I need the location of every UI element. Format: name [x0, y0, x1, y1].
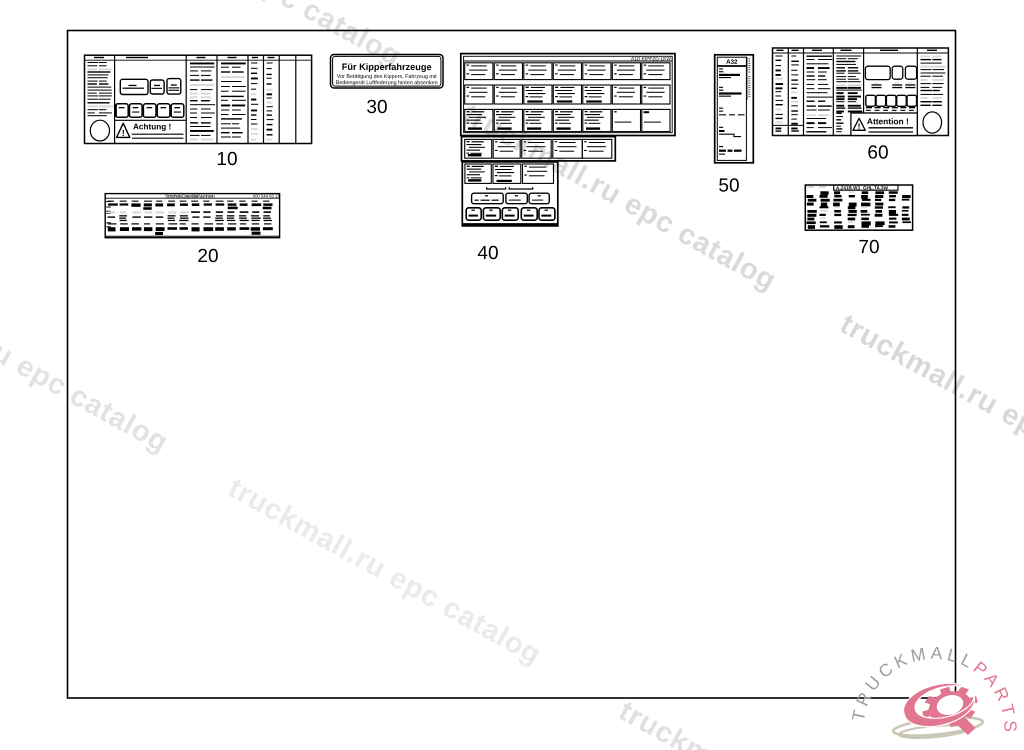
svg-text:A.Z41B.W3: A.Z41B.W3	[836, 185, 860, 190]
svg-text:60: 60	[867, 142, 888, 163]
svg-text:Sicherheits-Datenblatt-Nummern: Sicherheits-Datenblatt-Nummern	[165, 194, 215, 199]
svg-text:!: !	[122, 128, 125, 138]
svg-text:!: !	[858, 121, 861, 131]
svg-text:A32: A32	[726, 59, 738, 66]
svg-text:truckmall.ru epc catalog: truckmall.ru epc catalog	[614, 695, 938, 750]
svg-text:truckmall.ru epc catalog: truckmall.ru epc catalog	[223, 472, 547, 671]
svg-text:50: 50	[718, 175, 739, 196]
svg-text:Attention !: Attention !	[867, 116, 909, 126]
svg-text:Bediengerät Luftfederung hinte: Bediengerät Luftfederung hinten absenken	[336, 80, 438, 86]
svg-text:Achtung !: Achtung !	[133, 122, 171, 131]
svg-text:Für Kipperfahrzeuge: Für Kipperfahrzeuge	[342, 62, 432, 72]
svg-text:70: 70	[858, 237, 879, 258]
svg-text:GHL.TA.3W: GHL.TA.3W	[863, 185, 889, 190]
svg-text:000 544 63 11: 000 544 63 11	[253, 193, 280, 198]
svg-text:truckmall.ru epc catalog: truckmall.ru epc catalog	[835, 308, 1024, 507]
svg-text:30: 30	[366, 97, 387, 118]
svg-text:20: 20	[197, 246, 218, 267]
svg-text:40: 40	[477, 243, 498, 264]
svg-text:10: 10	[216, 149, 237, 170]
svg-text:truckmall.ru epc catalog: truckmall.ru epc catalog	[0, 260, 174, 459]
